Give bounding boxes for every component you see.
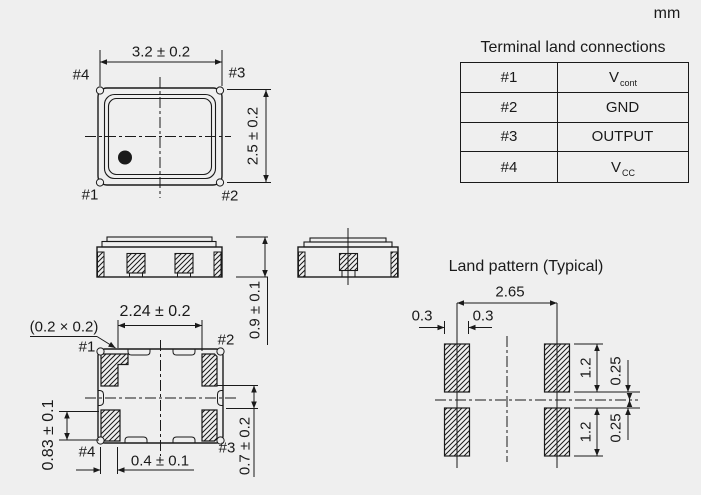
pad-4: [101, 410, 120, 441]
terminal-table: #1 Vcont #2 GND #3 OUTPUT #4 VCC: [460, 62, 689, 183]
connection-cell: VCC: [558, 152, 688, 182]
terminal-cell: #4: [461, 152, 558, 182]
land-pattern-pad-height-bottom: 1.2: [579, 422, 594, 443]
datasheet-drawing-page: mm Terminal land connections #1 Vcont #2…: [0, 0, 701, 495]
terminal-cell: #3: [461, 123, 558, 153]
pin1-marker-dot: [118, 151, 132, 165]
land-pattern-pad-height-top: 1.2: [579, 358, 594, 379]
pad-2: [202, 354, 217, 386]
pad-height-dimension-lines: [59, 412, 99, 441]
terminal-label-3: #3: [219, 441, 236, 456]
top-view-height-dimension: 2.5 ± 0.2: [246, 107, 261, 165]
package-side-view: [298, 228, 398, 285]
terminal-label-2: #2: [222, 189, 239, 204]
connection-cell: Vcont: [558, 63, 688, 93]
land-pattern-pitch-dimension: 2.65: [495, 285, 524, 300]
pad-1: [101, 354, 128, 386]
side-view-thickness-dimension: 0.9 ± 0.1: [248, 281, 263, 339]
terminal-label-4: #4: [73, 68, 90, 83]
land-pattern-title: Land pattern (Typical): [449, 259, 604, 275]
connection-cell: GND: [558, 93, 688, 123]
land-pattern-half-width-right: 0.3: [473, 309, 494, 324]
land-pattern-gap-top: 0.25: [609, 356, 624, 385]
terminal-cell: #1: [461, 63, 558, 93]
terminal-table-title: Terminal land connections: [481, 40, 666, 56]
terminal-cell: #2: [461, 93, 558, 123]
bottom-view-pad-gap-dimension: 0.7 ± 0.2: [238, 417, 253, 475]
top-view-width-dimension: 3.2 ± 0.2: [132, 45, 190, 60]
terminal-label-3: #3: [229, 66, 246, 81]
bottom-view-pad-width-dimension: 0.4 ± 0.1: [131, 454, 189, 469]
package-front-view: [97, 237, 222, 277]
land-pattern-gap-bottom: 0.25: [609, 413, 624, 442]
terminal-label-4: #4: [79, 445, 96, 460]
terminal-label-2: #2: [218, 333, 235, 348]
terminal-label-1: #1: [82, 188, 99, 203]
terminal-label-1: #1: [79, 340, 96, 355]
index-cut-leader: [30, 337, 116, 349]
connection-cell: OUTPUT: [558, 123, 688, 153]
land-pattern-half-width-left: 0.3: [412, 309, 433, 324]
bottom-view-span-dimension: 2.24 ± 0.2: [119, 304, 190, 320]
index-cut-note: (0.2 × 0.2): [30, 320, 99, 335]
bottom-view-pad-height-dimension: 0.83 ± 0.1: [41, 399, 57, 470]
unit-label: mm: [654, 6, 681, 22]
pad-3: [202, 410, 217, 441]
